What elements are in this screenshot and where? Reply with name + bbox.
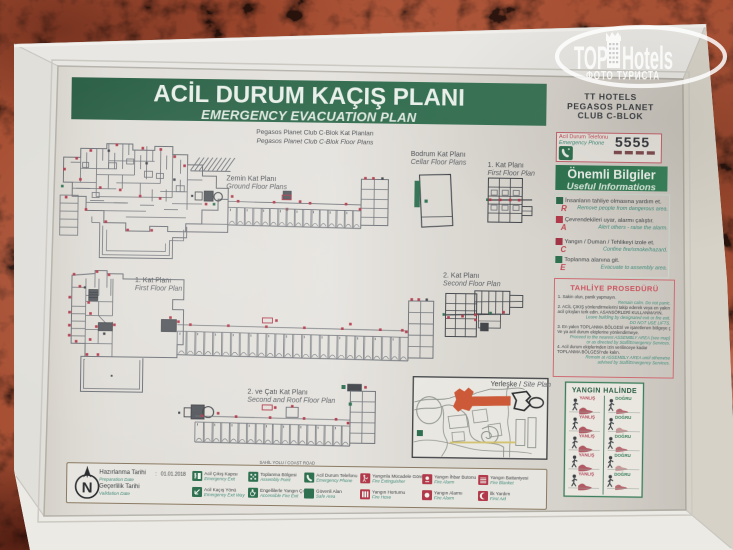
svg-text:DOĞRU: DOĞRU xyxy=(615,434,631,439)
svg-text:YANLIŞ: YANLIŞ xyxy=(579,452,595,457)
svg-text:DOĞRU: DOĞRU xyxy=(615,415,631,420)
svg-text:YANLIŞ: YANLIŞ xyxy=(579,433,595,438)
svg-text:DOĞRU: DOĞRU xyxy=(614,472,630,477)
svg-text:DOĞRU: DOĞRU xyxy=(615,396,631,401)
svg-text:YANLIŞ: YANLIŞ xyxy=(579,414,595,419)
svg-text:YANGIN HALİNDE: YANGIN HALİNDE xyxy=(572,386,637,395)
svg-text:YANLIŞ: YANLIŞ xyxy=(578,471,594,476)
svg-text:ФОТО ТУРИСТА: ФОТО ТУРИСТА xyxy=(586,71,660,83)
svg-text:YANLIŞ: YANLIŞ xyxy=(580,395,596,400)
svg-text:N: N xyxy=(82,479,93,496)
svg-text:DOĞRU: DOĞRU xyxy=(614,453,630,458)
